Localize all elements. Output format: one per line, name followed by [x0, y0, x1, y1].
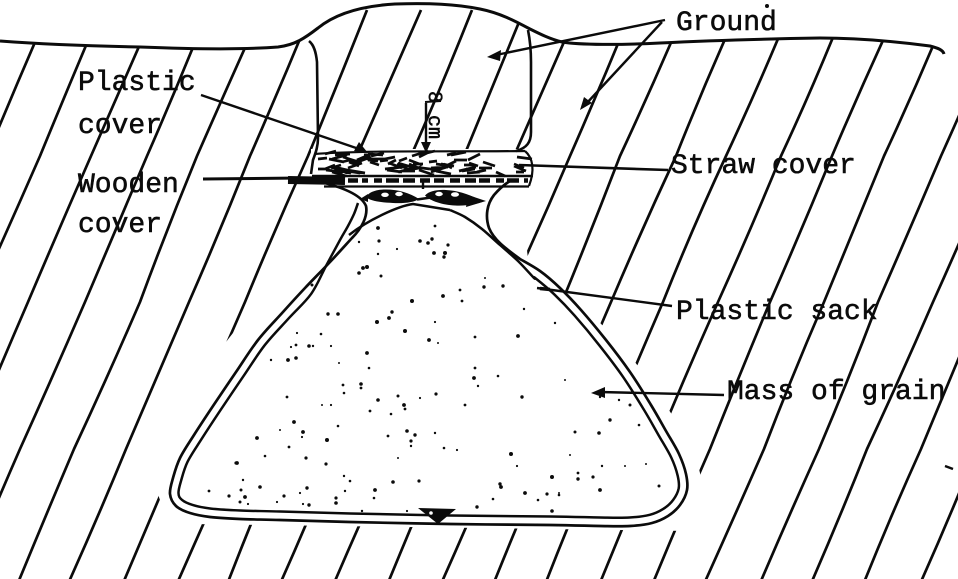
svg-text:Mass of grain: Mass of grain: [727, 377, 945, 408]
svg-text:cover: cover: [78, 210, 162, 241]
svg-text:8 cm: 8 cm: [422, 91, 445, 139]
svg-text:Ground: Ground: [676, 8, 777, 39]
svg-text:Wooden: Wooden: [78, 170, 179, 201]
svg-text:cover: cover: [78, 111, 162, 142]
svg-text:Plastic: Plastic: [78, 68, 196, 99]
svg-text:Straw cover: Straw cover: [671, 151, 856, 182]
svg-text:Plastic sack: Plastic sack: [676, 297, 878, 328]
